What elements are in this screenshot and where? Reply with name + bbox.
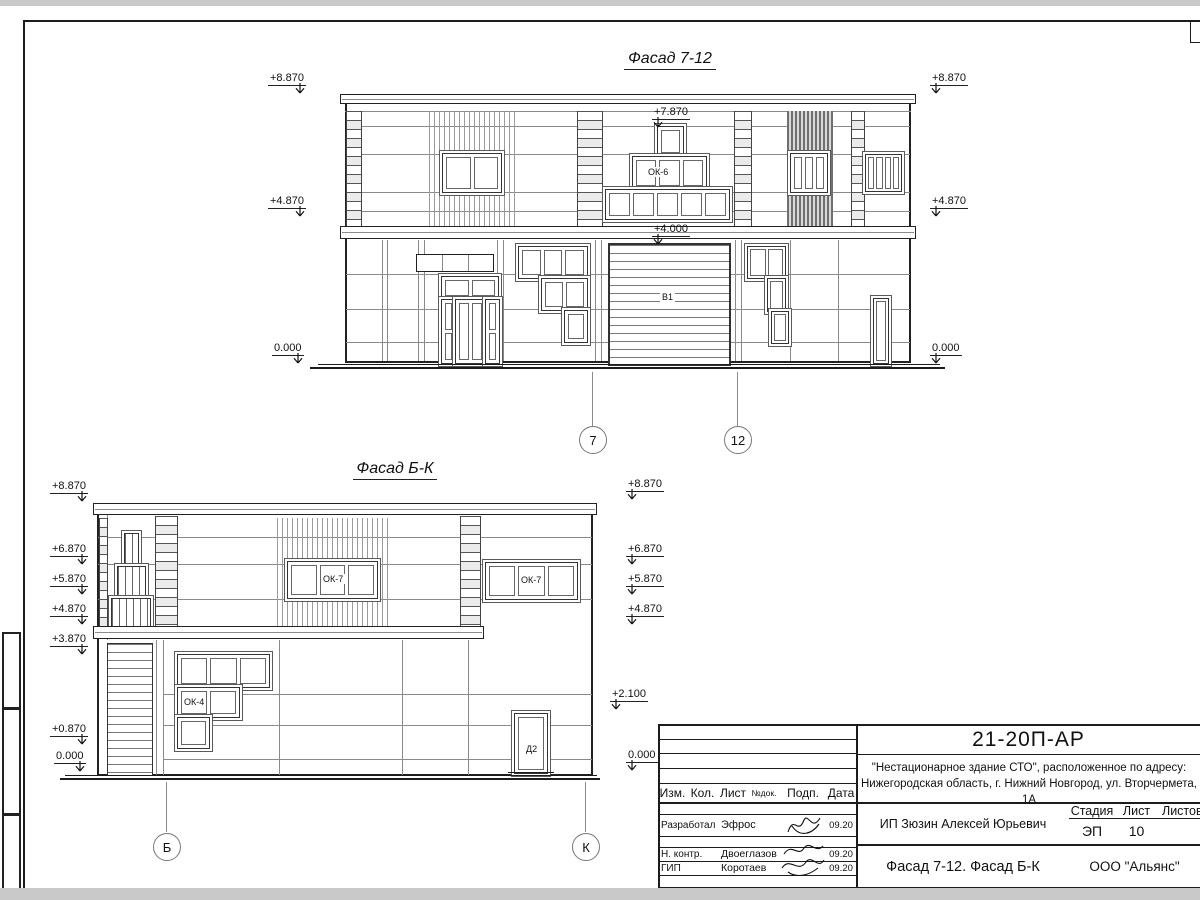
elevation-mark: +8.870 (50, 480, 88, 494)
facade-7-12-title: Фасад 7-12 (605, 50, 735, 68)
elevation-mark: +7.870 (652, 106, 690, 120)
ground-line-heavy (310, 367, 945, 369)
list-value: 10 (1115, 818, 1158, 844)
frame-left (23, 20, 25, 890)
ground-line (318, 364, 940, 365)
signer-date: 09.20 (826, 847, 856, 861)
stage-label: Стадия (1069, 803, 1115, 818)
rev-header-ndoc: №док. (748, 783, 780, 802)
company-name: ООО "Альянс" (1069, 846, 1200, 887)
page-margin-bottom (0, 888, 1200, 900)
signer-role: Н. контр. (661, 847, 717, 861)
facade-bk-title: Фасад Б-К (325, 460, 465, 478)
quoin-pilaster (155, 516, 178, 638)
rev-header-podp: Подп. (780, 783, 826, 802)
signature-developer (784, 810, 824, 838)
signer-name: Коротаев (721, 861, 780, 875)
elevation-mark: +4.000 (652, 223, 690, 237)
elevation-mark: +0.870 (50, 723, 88, 737)
elevation-mark: 0.000 (272, 342, 304, 356)
project-description: "Нестационарное здание СТО", расположенн… (860, 758, 1198, 802)
client-name: ИП Зюзин Алексей Юрьевич (857, 804, 1069, 844)
axis-marker-b: Б (153, 833, 181, 861)
quoin-pilaster (346, 111, 362, 228)
signer-date: 09.20 (826, 815, 856, 835)
axis-marker-k: К (572, 833, 600, 861)
frame-corner-box-bottom (1190, 42, 1200, 43)
elevation-mark: +4.870 (626, 603, 664, 617)
roller-shutter (107, 643, 153, 776)
elevation-mark: +5.870 (50, 573, 88, 587)
ground-line-heavy (60, 778, 600, 780)
elevation-mark: +8.870 (268, 72, 306, 86)
window-ok4-label: ОК-4 (182, 697, 206, 707)
doc-number: 21-20П-АР (857, 726, 1200, 754)
window-ok7-b-label: ОК-7 (519, 575, 543, 585)
window-2pane (442, 153, 502, 193)
axis-marker-12: 12 (724, 426, 752, 454)
elevation-mark: +4.870 (268, 195, 306, 209)
paper-sheet: Фасад 7-12 (0, 6, 1200, 888)
elevation-mark: +4.870 (50, 603, 88, 617)
list-label: Лист (1115, 803, 1158, 818)
elevation-mark: +8.870 (626, 478, 664, 492)
page-margin-top (0, 0, 1200, 6)
entrance-door (455, 299, 486, 364)
gate-v1 (608, 243, 731, 366)
frame-top (23, 20, 1200, 22)
elevation-mark: +4.870 (930, 195, 968, 209)
signature-control (778, 840, 826, 878)
side-door (873, 298, 889, 364)
quoin-pilaster (734, 111, 752, 228)
window-ok7-a-label: ОК-7 (321, 574, 345, 584)
gate-v1-label: В1 (660, 292, 675, 302)
quoin-pilaster (99, 518, 108, 636)
axis-marker-7: 7 (579, 426, 607, 454)
signer-date: 09.20 (826, 861, 856, 875)
stage-value: ЭП (1069, 818, 1115, 844)
door-d2-label: Д2 (524, 744, 539, 754)
rev-header-list: Лист (718, 783, 748, 802)
quoin-pilaster (851, 111, 865, 228)
elevation-mark: +6.870 (50, 543, 88, 557)
rev-header-izm: Изм. (658, 783, 687, 802)
frame-corner-box (1190, 22, 1191, 42)
elevation-mark: 0.000 (54, 750, 86, 764)
window-4pane (865, 154, 902, 192)
quoin-pilaster (460, 516, 481, 638)
elevation-mark: +2.100 (610, 688, 648, 702)
elevation-mark: +5.870 (626, 573, 664, 587)
elevation-mark: +3.870 (50, 633, 88, 647)
signer-role: ГИП (661, 861, 717, 875)
elevation-mark: +8.870 (930, 72, 968, 86)
sheet-title: Фасад 7-12. Фасад Б-К (857, 846, 1069, 887)
signer-role: Разработал (661, 815, 717, 835)
project-description-line1: "Нестационарное здание СТО", расположенн… (860, 760, 1198, 776)
listov-label: Листов (1162, 803, 1200, 818)
quoin-pilaster (577, 111, 603, 228)
drawing-sheet-page: { "sheet": { "doc_number": "21-20П-АР", … (0, 0, 1200, 900)
rev-header-data: Дата (826, 783, 856, 802)
window-ok6-label: ОК-6 (646, 167, 670, 177)
signer-name: Эфрос (721, 815, 779, 835)
window-3pane (790, 153, 828, 193)
elevation-mark: +6.870 (626, 543, 664, 557)
signer-name: Двоеглазов (721, 847, 780, 861)
ground-line (65, 775, 597, 776)
elevation-mark: 0.000 (626, 749, 658, 763)
entrance-canopy (416, 254, 494, 272)
rev-header-kol: Кол. (687, 783, 718, 802)
elevation-mark: 0.000 (930, 342, 962, 356)
